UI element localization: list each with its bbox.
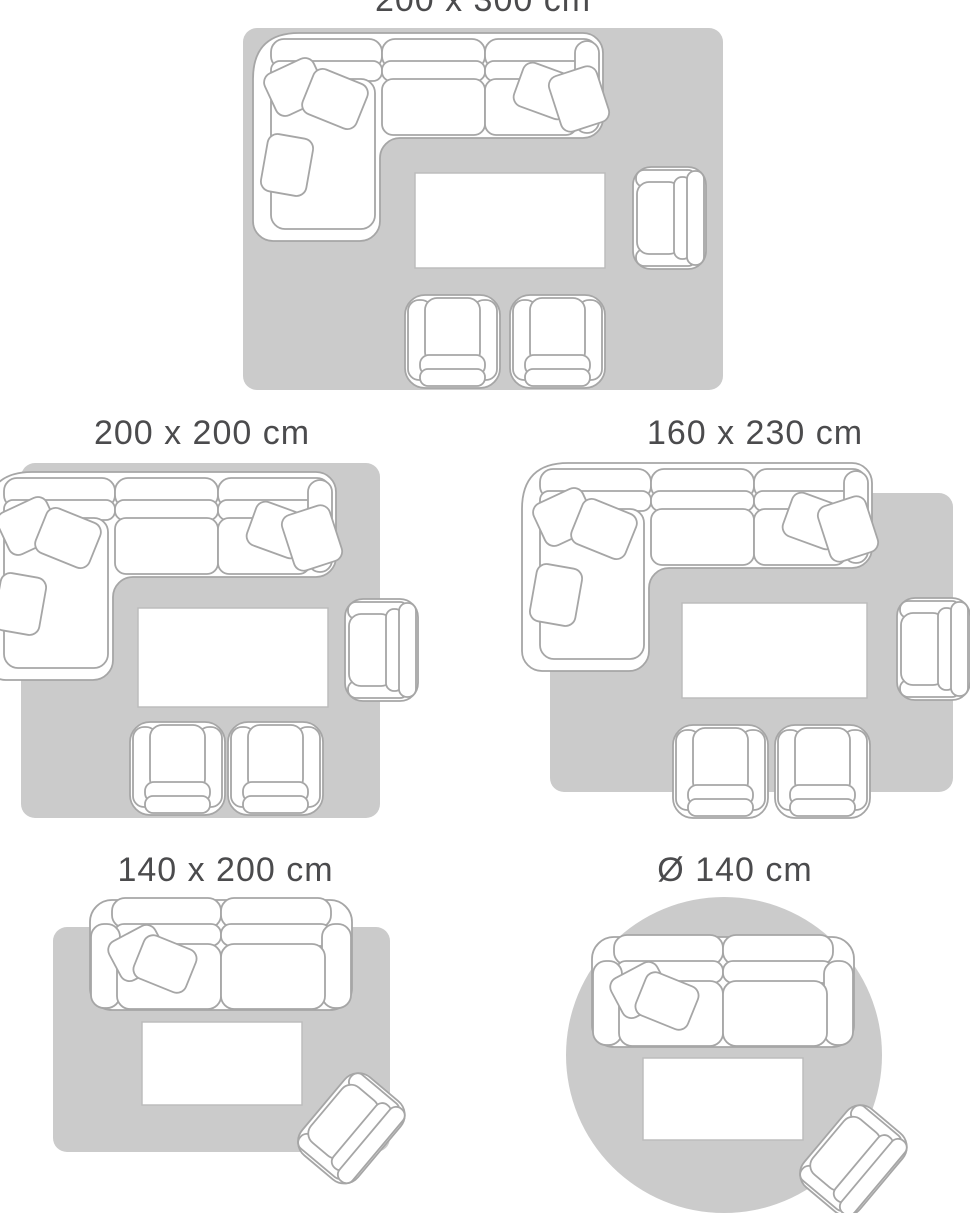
armless-chair-icon — [673, 725, 768, 818]
armchair-icon — [897, 598, 970, 700]
coffee-table-icon — [415, 173, 605, 268]
loveseat-sofa-icon — [592, 935, 854, 1047]
armless-chair-icon — [130, 722, 225, 815]
armless-chair-icon — [510, 295, 605, 388]
loveseat-sofa-icon — [90, 898, 352, 1010]
size-label-200x200: 200 x 200 cm — [21, 415, 383, 451]
armchair-icon — [345, 599, 418, 701]
size-label-140-round: Ø 140 cm — [520, 852, 950, 888]
rug-diagram-160x230 — [450, 455, 970, 825]
armchair-icon — [633, 167, 706, 269]
rug-diagram-140x200 — [0, 890, 450, 1213]
size-label-160x230: 160 x 230 cm — [550, 415, 960, 451]
coffee-table-icon — [142, 1022, 302, 1105]
armless-chair-icon — [228, 722, 323, 815]
armless-chair-icon — [405, 295, 500, 388]
coffee-table-icon — [682, 603, 867, 698]
rug-diagram-200x300 — [0, 0, 970, 400]
rug-diagram-140-round — [520, 890, 970, 1213]
coffee-table-icon — [138, 608, 328, 707]
coffee-table-icon — [643, 1058, 803, 1140]
rug-size-guide: 200 x 300 cm 200 x 200 cm 160 x 230 cm 1… — [0, 0, 970, 1213]
size-label-140x200: 140 x 200 cm — [53, 852, 398, 888]
rug-diagram-200x200 — [0, 455, 450, 825]
armless-chair-icon — [775, 725, 870, 818]
